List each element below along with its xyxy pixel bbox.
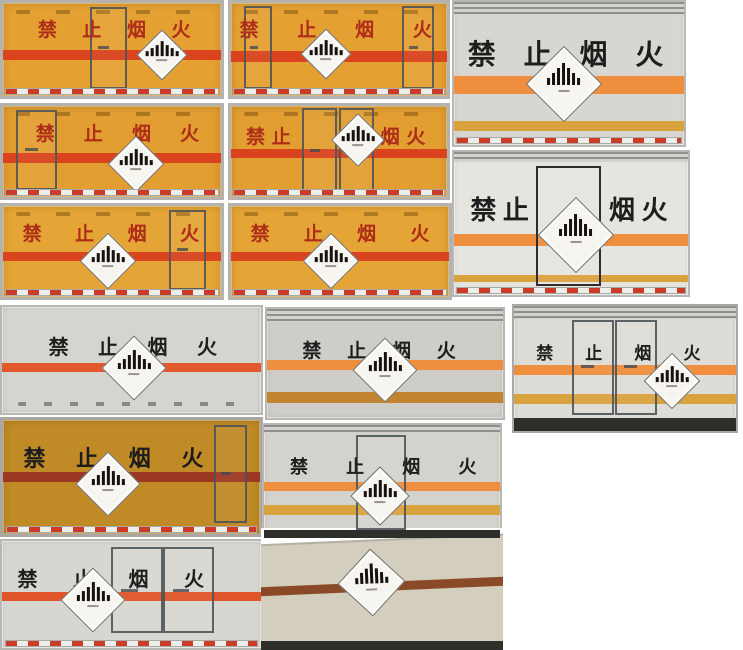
roller-rails xyxy=(514,306,736,319)
truck-underbody xyxy=(514,418,736,431)
char: 禁 xyxy=(240,21,259,40)
photo-white-van-rear-e3: 禁止烟火 xyxy=(512,304,738,433)
text-group: 禁止 xyxy=(470,198,535,224)
placard-bars xyxy=(551,210,601,260)
char: 烟 xyxy=(355,21,374,40)
hazard-diamond-icon xyxy=(108,136,165,193)
photo-yellow-van-a1: 禁止烟火 xyxy=(0,0,224,99)
photo-collage: 禁止烟火 禁止烟火 禁止烟火 禁止烟火 xyxy=(0,0,743,650)
reflective-strip xyxy=(5,189,219,196)
char: 烟 xyxy=(579,41,607,69)
char: 烟 xyxy=(357,225,376,244)
photo-yellow-van-b1: 禁止烟火 xyxy=(0,103,224,200)
photo-yellow-van-c1: 禁止烟火 xyxy=(0,203,224,300)
placard-bars xyxy=(146,39,179,72)
char: 烟 xyxy=(634,346,651,363)
roller-rails xyxy=(267,309,503,322)
char: 禁 xyxy=(468,41,496,69)
photo-white-van-a3: 禁止烟火 xyxy=(452,0,686,147)
photo-white-van-e1: 禁止烟火 xyxy=(0,305,263,415)
char: 烟 xyxy=(129,449,151,471)
rivet-row xyxy=(18,402,246,406)
char: 止 xyxy=(585,346,602,363)
reflective-strip xyxy=(233,88,445,95)
char: 禁 xyxy=(36,125,55,144)
photo-yellow-van-c2: 禁止烟火 xyxy=(228,203,452,300)
cargo-door xyxy=(572,320,614,415)
photo-amber-van-f1: 禁止烟火 xyxy=(0,417,263,537)
char: 禁 xyxy=(302,342,321,361)
placard-bars xyxy=(653,363,690,400)
placard-bars xyxy=(118,146,155,183)
char: 火 xyxy=(635,41,663,69)
char: 止 xyxy=(297,21,316,40)
box-body xyxy=(261,533,503,650)
roller-rails xyxy=(454,152,688,162)
photo-yellow-van-a2: 禁止烟火 xyxy=(228,0,450,99)
placard-bars xyxy=(72,579,114,621)
reflective-strip xyxy=(5,88,219,95)
char: 止 xyxy=(82,21,101,40)
text-group: 烟 火 xyxy=(381,128,426,147)
char: 火 xyxy=(181,449,203,471)
char: 禁 xyxy=(536,346,553,363)
cargo-door xyxy=(615,320,657,415)
placard-bars xyxy=(113,347,155,389)
char: 止 xyxy=(84,125,103,144)
char: 烟 xyxy=(127,21,146,40)
placard-bars xyxy=(360,477,398,515)
truck-underbody xyxy=(264,530,500,538)
char: 火 xyxy=(413,21,432,40)
photo-white-van-e2: 禁止烟火 xyxy=(265,307,505,420)
cargo-door xyxy=(302,108,337,194)
placard-bars xyxy=(348,559,394,605)
char: 禁 xyxy=(290,459,308,477)
photo-beige-box-g2 xyxy=(261,528,503,650)
char: 止 xyxy=(75,225,94,244)
reflective-strip xyxy=(233,189,445,196)
placard-bars xyxy=(87,463,129,505)
char: 禁 xyxy=(38,21,57,40)
char: 禁 xyxy=(18,569,38,589)
photo-white-van-rear-d: 禁止烟火 xyxy=(452,150,690,297)
reflective-strip xyxy=(5,289,219,296)
char: 禁 xyxy=(23,225,42,244)
placard-bars xyxy=(313,242,350,279)
no-fireworks-text: 禁止烟火 xyxy=(36,125,200,144)
char: 火 xyxy=(180,225,199,244)
reflective-strip xyxy=(456,287,685,294)
photo-white-van-rear-f2: 禁止烟火 xyxy=(262,423,502,540)
char: 禁 xyxy=(251,225,270,244)
reflective-strip xyxy=(5,640,259,647)
reflective-strip xyxy=(6,526,258,533)
char: 火 xyxy=(410,225,429,244)
char: 火 xyxy=(184,569,204,589)
char: 烟 xyxy=(128,225,147,244)
placard-bars xyxy=(364,349,406,391)
reflective-strip xyxy=(233,289,447,296)
text-group: 烟火 xyxy=(609,198,674,224)
cargo-door xyxy=(169,210,206,290)
char: 火 xyxy=(458,459,476,477)
placard-bars xyxy=(310,38,343,71)
cargo-door xyxy=(16,110,57,190)
char: 火 xyxy=(683,346,700,363)
photo-white-van-g1: 禁止烟火 xyxy=(0,539,263,650)
roller-rails xyxy=(264,425,500,434)
hazard-diamond-icon xyxy=(337,548,405,616)
char: 火 xyxy=(180,125,199,144)
char: 禁 xyxy=(24,449,46,471)
char: 禁 xyxy=(49,337,69,357)
cargo-door xyxy=(214,425,247,523)
truck-underbody xyxy=(261,641,503,650)
vent-slots xyxy=(244,212,436,216)
char: 火 xyxy=(171,21,190,40)
no-fireworks-text: 禁止烟火 xyxy=(240,21,432,40)
char: 烟 xyxy=(402,459,420,477)
char: 火 xyxy=(197,337,217,357)
placard-bars xyxy=(539,59,589,109)
char: 烟 xyxy=(129,569,149,589)
char: 止 xyxy=(346,459,364,477)
placard-bars xyxy=(341,122,376,157)
char: 火 xyxy=(437,342,456,361)
text-group: 禁 止 xyxy=(246,128,291,147)
photo-yellow-van-b2: 禁 止烟 火 xyxy=(228,103,450,200)
placard-bars xyxy=(89,242,126,279)
roller-rails xyxy=(454,2,684,15)
warning-stripe xyxy=(454,121,684,131)
reflective-strip xyxy=(456,137,681,144)
char: 止 xyxy=(304,225,323,244)
